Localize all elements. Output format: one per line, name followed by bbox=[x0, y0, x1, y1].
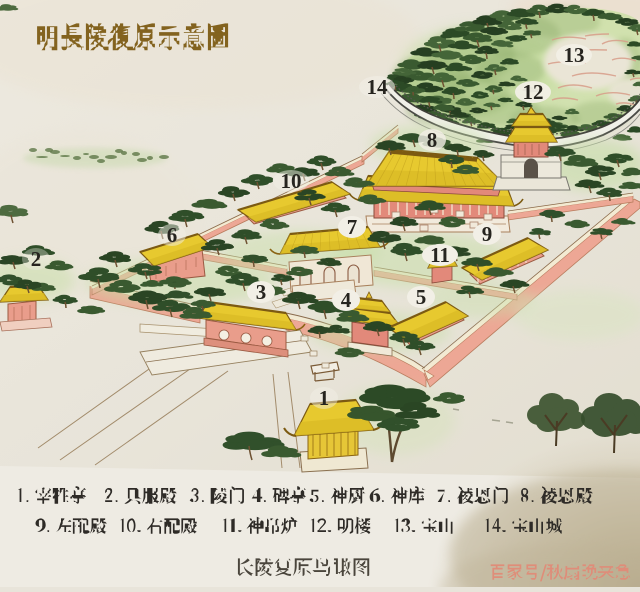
svg-text:13: 13 bbox=[564, 43, 585, 67]
svg-text:1: 1 bbox=[319, 386, 330, 410]
svg-text:2: 2 bbox=[31, 247, 42, 271]
svg-text:7: 7 bbox=[347, 215, 358, 239]
svg-text:8: 8 bbox=[427, 128, 438, 152]
svg-text:10: 10 bbox=[281, 169, 302, 193]
svg-text:6: 6 bbox=[167, 223, 178, 247]
svg-text:5: 5 bbox=[416, 285, 427, 309]
svg-text:12: 12 bbox=[523, 80, 544, 104]
svg-text:14: 14 bbox=[367, 75, 389, 99]
svg-text:4: 4 bbox=[341, 288, 352, 312]
svg-text:3: 3 bbox=[256, 280, 267, 304]
svg-text:11: 11 bbox=[430, 243, 450, 267]
svg-text:9: 9 bbox=[482, 222, 493, 246]
